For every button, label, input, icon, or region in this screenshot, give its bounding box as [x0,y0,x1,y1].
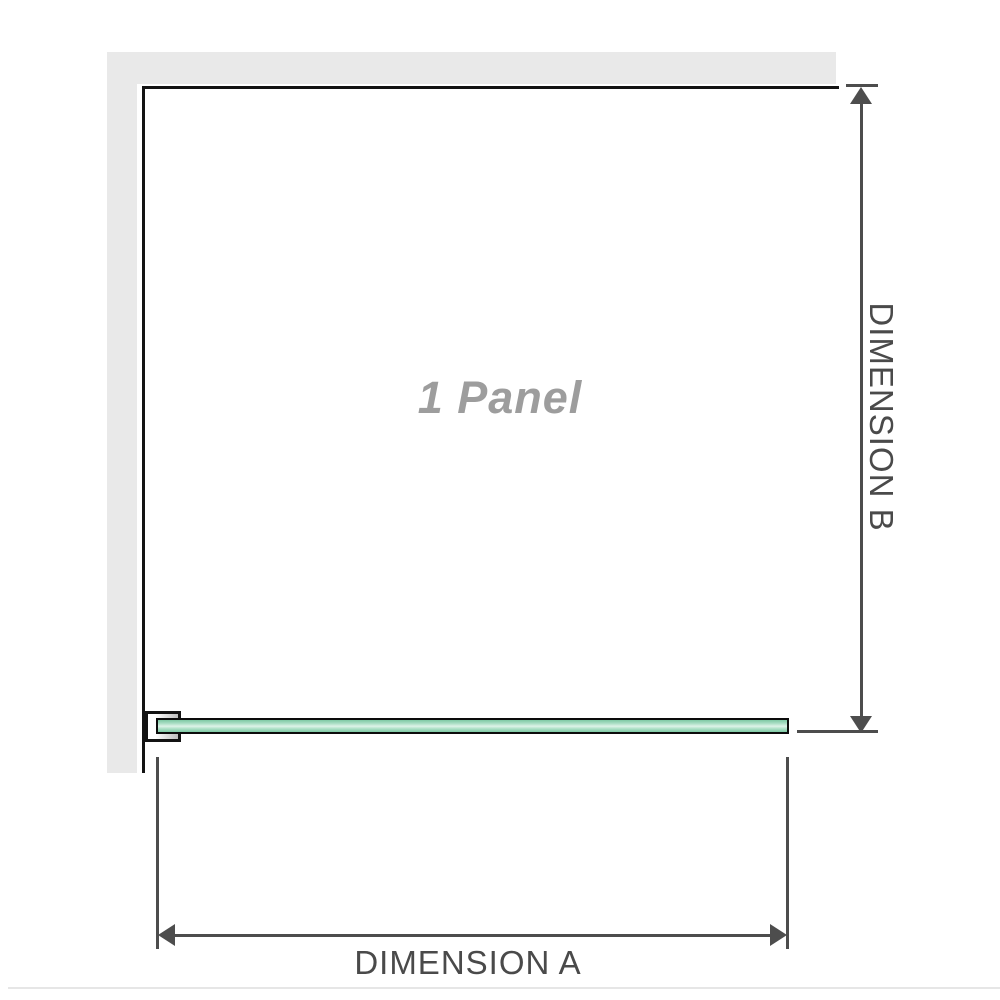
dimension-a-right-extension-line [786,757,789,949]
arrowhead-up-icon [850,87,872,104]
dimension-a-label: DIMENSION A [354,944,581,982]
panel-left-edge [142,86,145,773]
arrowhead-left-icon [158,924,175,946]
bottom-divider [8,987,1000,989]
dimension-b-label: DIMENSION B [862,302,900,531]
panel-count-label: 1 Panel [418,372,583,424]
dimension-a-line [170,934,775,937]
wall-top [107,52,836,84]
arrowhead-right-icon [770,924,787,946]
dimension-a-left-extension-line [156,757,159,949]
arrowhead-down-icon [850,716,872,733]
glass-panel-top-view [156,718,789,734]
shower-panel-dimension-diagram: 1 Panel DIMENSION B DIMENSION A [0,0,1000,1000]
panel-top-edge [142,86,839,89]
wall-left [107,52,137,773]
